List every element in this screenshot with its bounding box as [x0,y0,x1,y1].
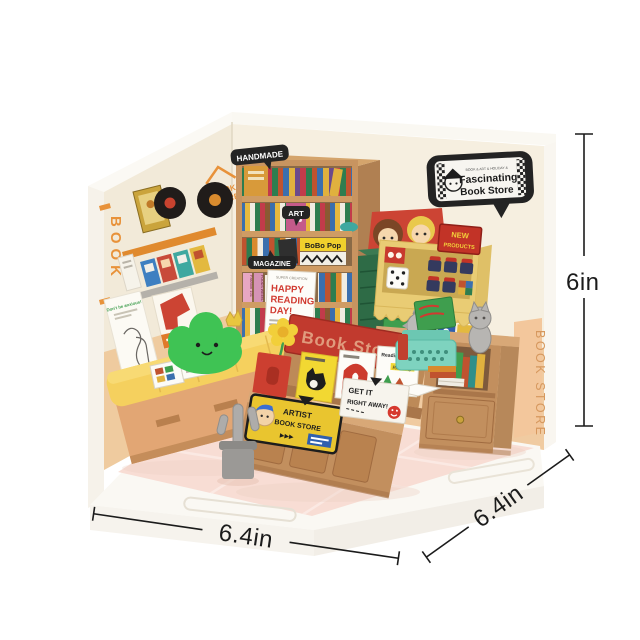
fashion-mag-spine: Fashion 101 [249,275,254,298]
orange-book-stack [428,366,456,372]
foods-mag-spine: FOODS WEEKLY [260,275,264,304]
red-spine-book [398,334,408,360]
happy-line3: DAY! [270,305,293,317]
silver-cat-figure [469,302,491,353]
miniature-bookstore-photo: BOOK STORE BOOK BOOK STORE [0,0,640,640]
art-tag-text: ART [288,209,304,218]
color-cube [458,280,473,295]
bobo-pop-title: BoBo Pop [305,241,342,250]
teal-bowl [340,222,358,232]
white-die [386,267,409,290]
plant-pot [222,449,254,479]
right-wall-bookstore-text: BOOK STORE [533,330,547,437]
yellow-cat-book [296,352,338,403]
cabinet-drawer [426,396,495,443]
cactus-sculpture [216,404,260,479]
sticker-box [384,246,405,264]
new-products-sign: NEW PRODUCTS [438,224,482,255]
mint-typewriter [396,330,456,370]
magazine-tag-text: MAGAZINE [253,261,291,268]
height-label: 6in [566,269,600,296]
product-screenshot: BOOK STORE BOOK BOOK STORE [0,0,640,640]
new-text: NEW [451,230,470,241]
green-booklet [414,297,456,332]
